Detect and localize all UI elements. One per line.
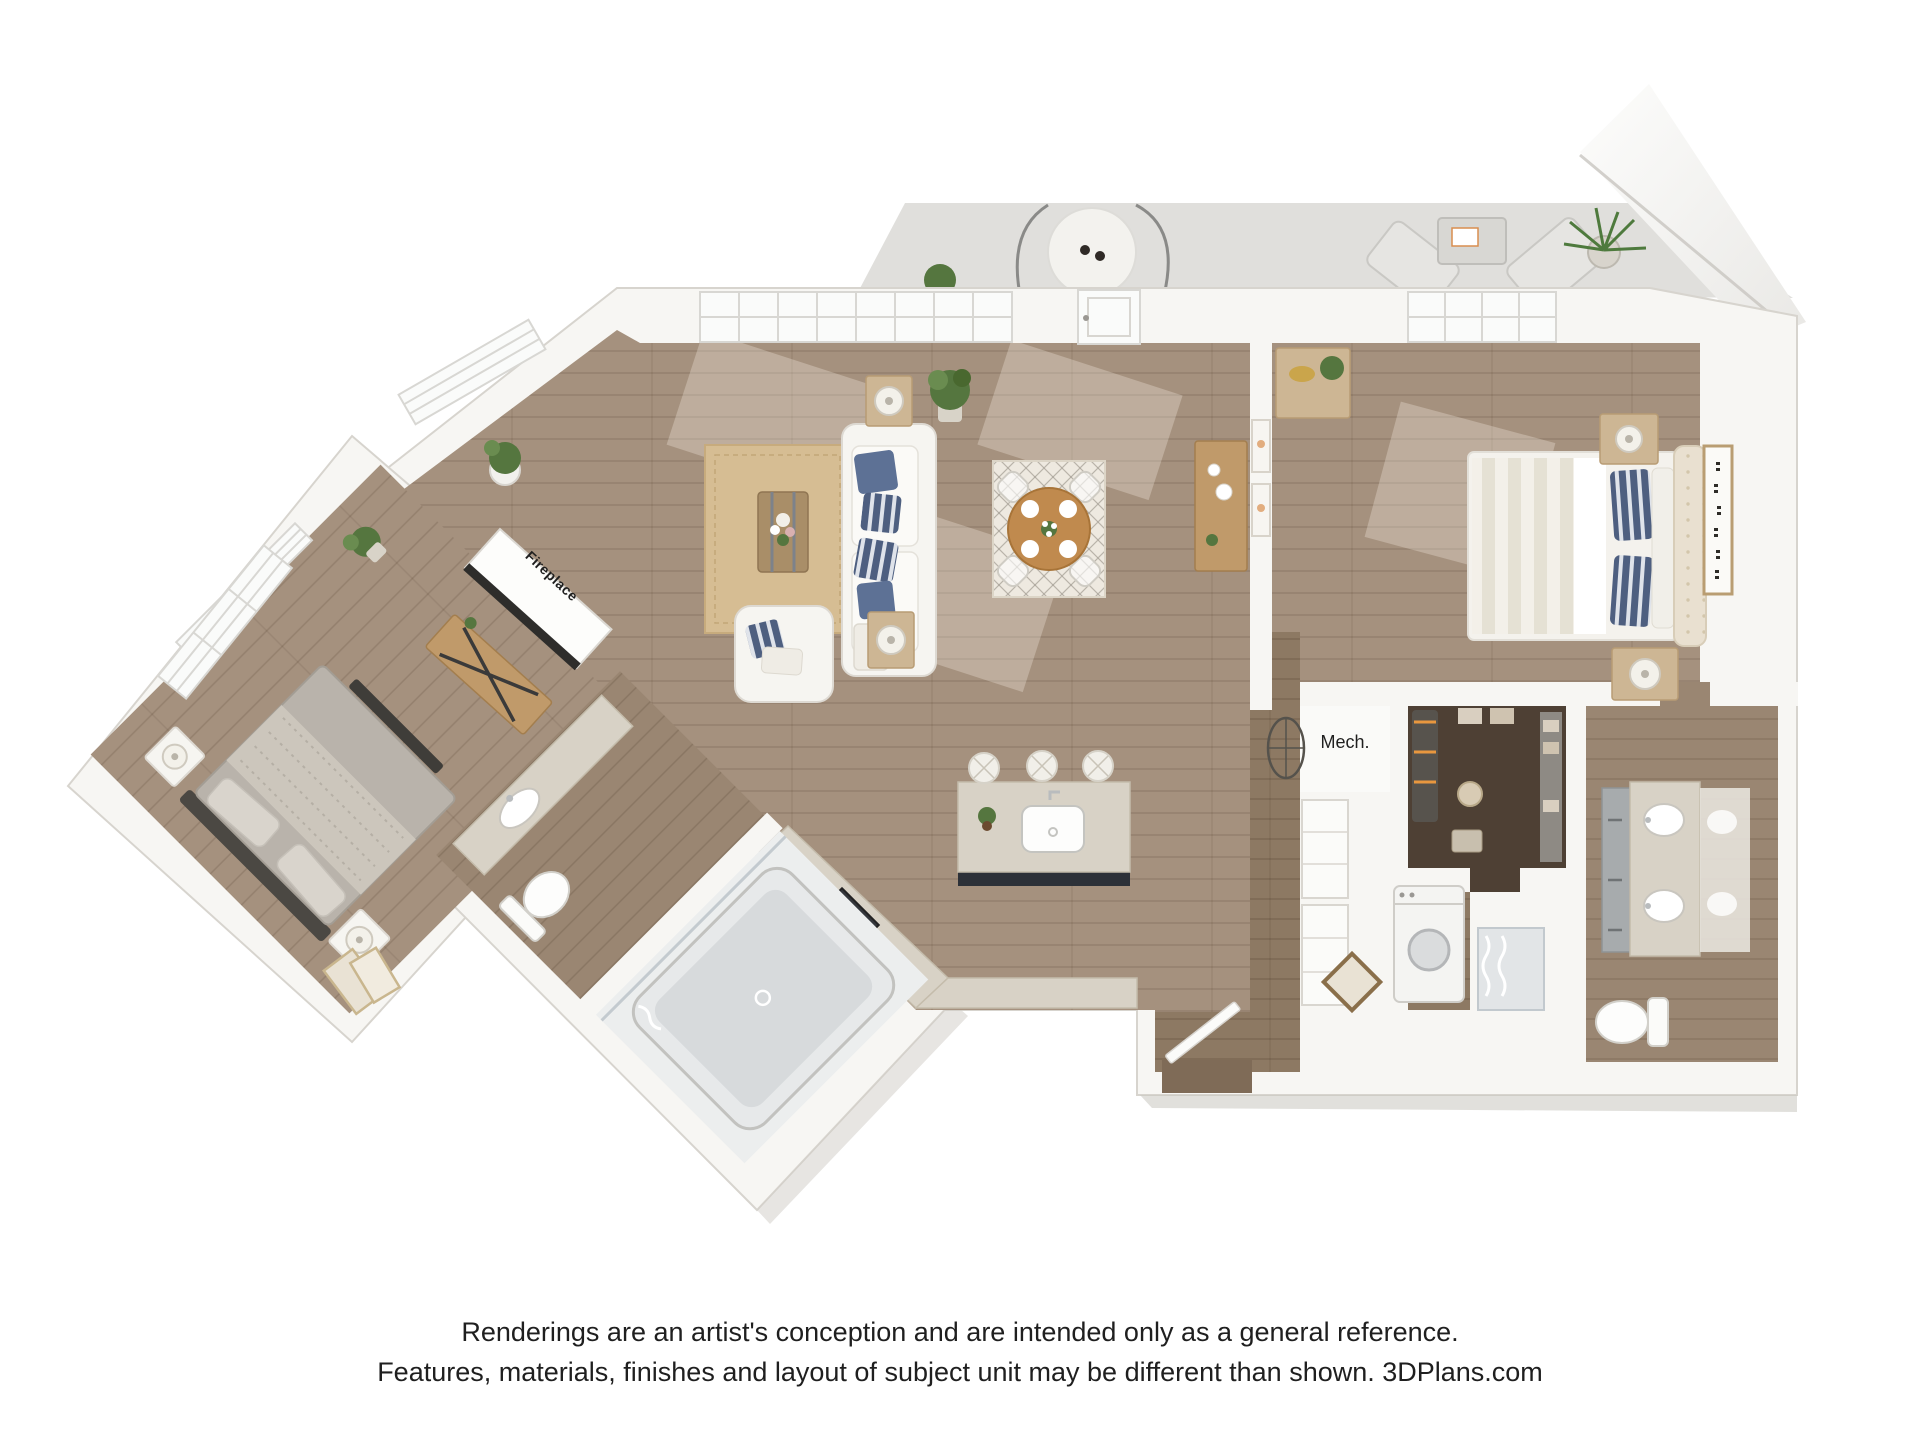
living-room-window <box>700 292 1012 342</box>
dining-table <box>1008 488 1090 570</box>
master-toilet <box>1596 998 1668 1046</box>
side-table-lamp-north <box>866 376 912 426</box>
wall-laundry-south <box>1300 1010 1586 1062</box>
master-bed <box>1468 446 1706 646</box>
kitchen-island <box>958 782 1130 886</box>
entry-door-opening <box>1162 1060 1252 1093</box>
trunk-coffee-table <box>758 492 808 572</box>
master-bedroom-window <box>1408 292 1556 342</box>
master-vanity <box>1602 782 1750 956</box>
kitchen-stools <box>969 751 1113 783</box>
disclaimer-line-2: Features, materials, finishes and layout… <box>0 1352 1920 1392</box>
farmhouse-sign-art <box>1704 446 1732 594</box>
floorplan-architecture <box>0 0 1920 1440</box>
master-nightstand-south <box>1612 648 1678 700</box>
disclaimer-line-1: Renderings are an artist's conception an… <box>0 1312 1920 1352</box>
shower-glass <box>1478 928 1544 1010</box>
side-table-lamp-south <box>868 612 914 668</box>
washer-dryer <box>1394 886 1464 1002</box>
wall-shadow-bottom <box>1140 1095 1797 1112</box>
wall-master-south <box>1300 682 1798 706</box>
closet-door-gap <box>1470 868 1520 892</box>
master-dresser <box>1276 348 1350 418</box>
floorplan-3d-render: Fireplace Mech. Renderings are an artist… <box>0 0 1920 1440</box>
armchair <box>735 606 833 702</box>
wall-closet-bath <box>1566 704 1586 1062</box>
console-sideboard <box>1195 441 1247 571</box>
patio-door <box>1078 290 1140 344</box>
kitchen-counter-south <box>916 978 1137 1008</box>
mech-room-label: Mech. <box>1298 732 1392 753</box>
disclaimer: Renderings are an artist's conception an… <box>0 1312 1920 1392</box>
master-nightstand-north <box>1600 414 1658 464</box>
